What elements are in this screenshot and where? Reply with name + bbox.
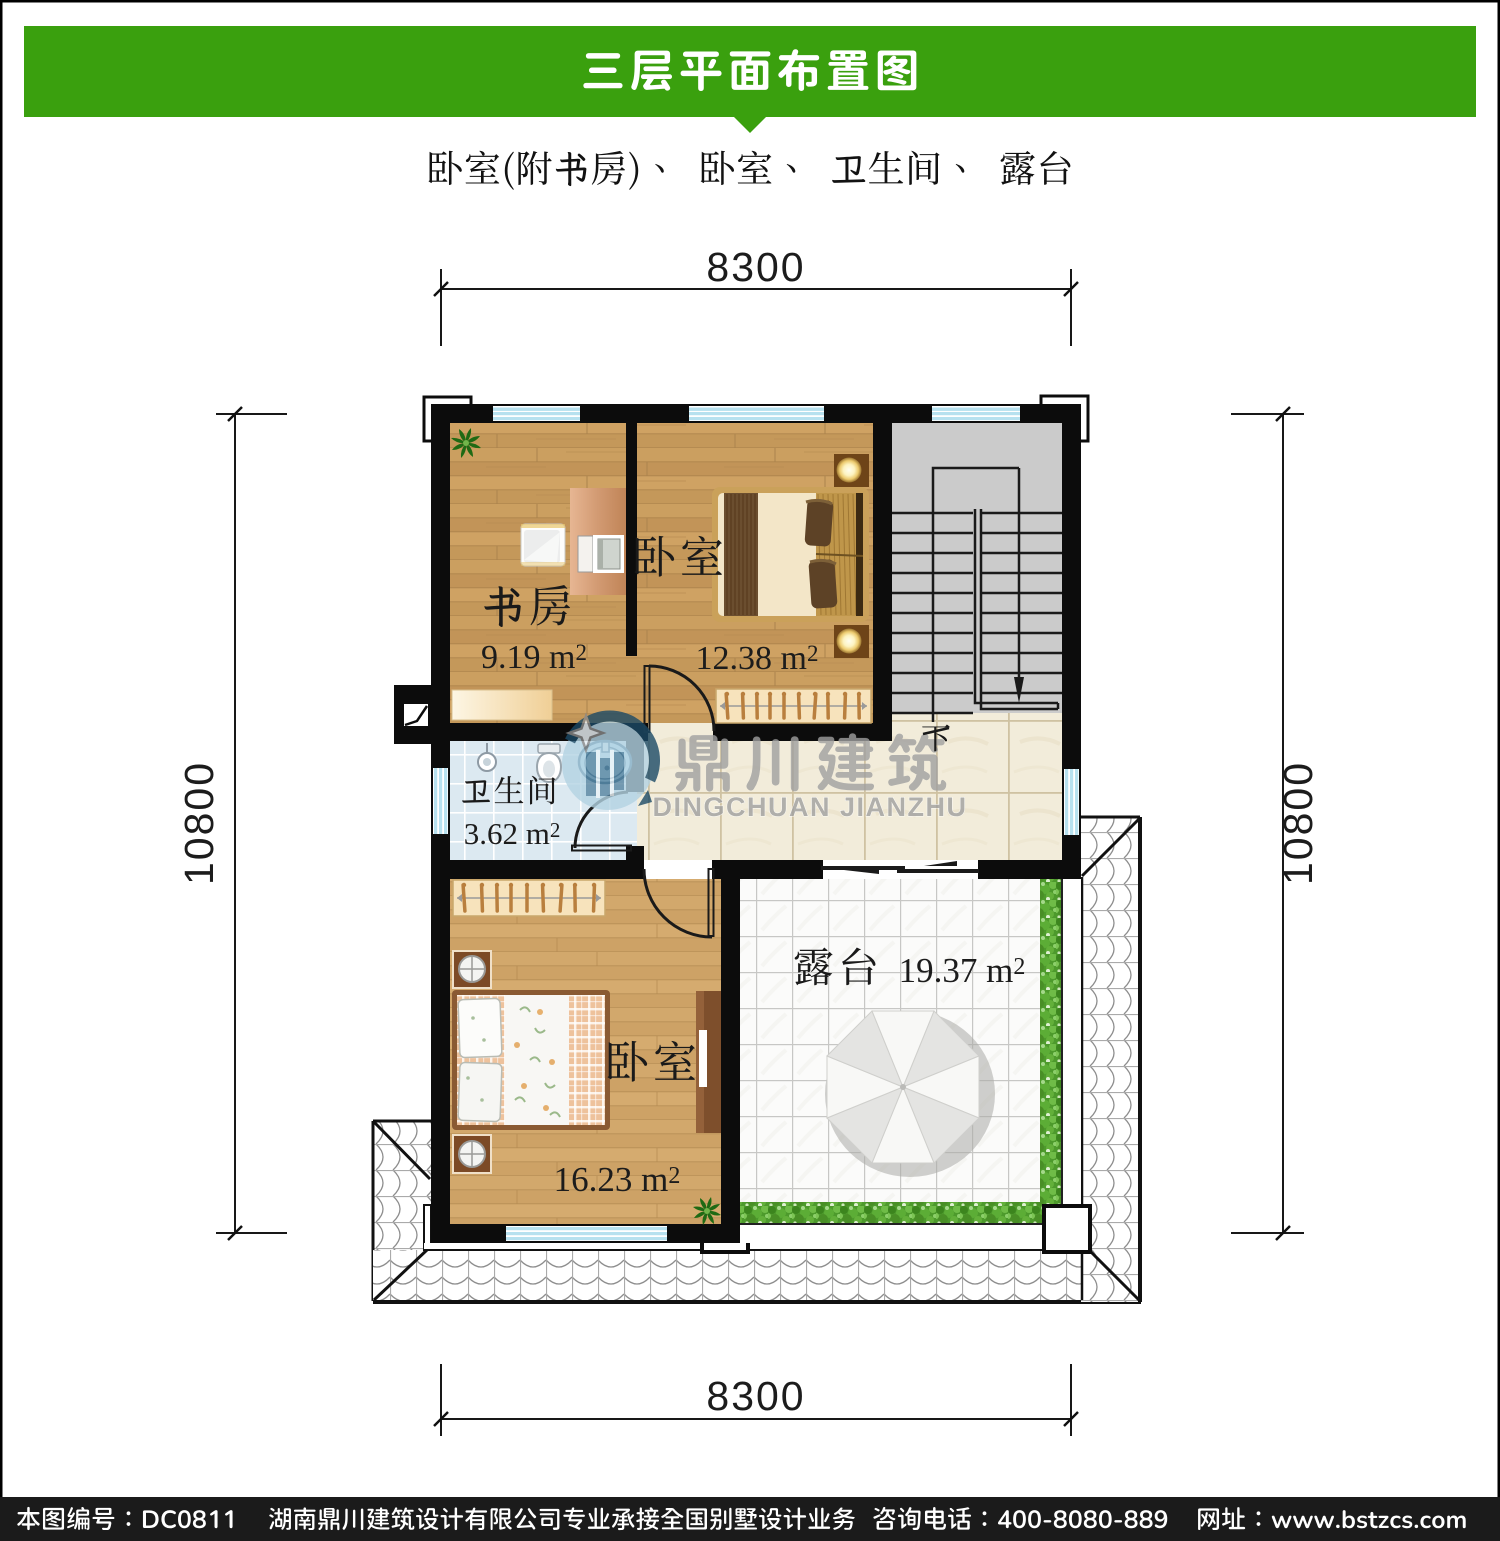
svg-text:DINGCHUAN JIANZHU: DINGCHUAN JIANZHU — [653, 792, 968, 822]
svg-text:16.23 m2: 16.23 m2 — [554, 1160, 681, 1199]
svg-text:12.38 m2: 12.38 m2 — [696, 640, 819, 677]
svg-text:10800: 10800 — [176, 761, 222, 885]
svg-text:19.37 m2: 19.37 m2 — [899, 951, 1026, 990]
svg-text:8300: 8300 — [706, 1373, 805, 1419]
svg-text:9.19 m2: 9.19 m2 — [481, 639, 587, 676]
svg-text:3.62 m2: 3.62 m2 — [464, 816, 561, 851]
svg-text:8300: 8300 — [706, 244, 805, 290]
svg-text:10800: 10800 — [1275, 761, 1321, 885]
